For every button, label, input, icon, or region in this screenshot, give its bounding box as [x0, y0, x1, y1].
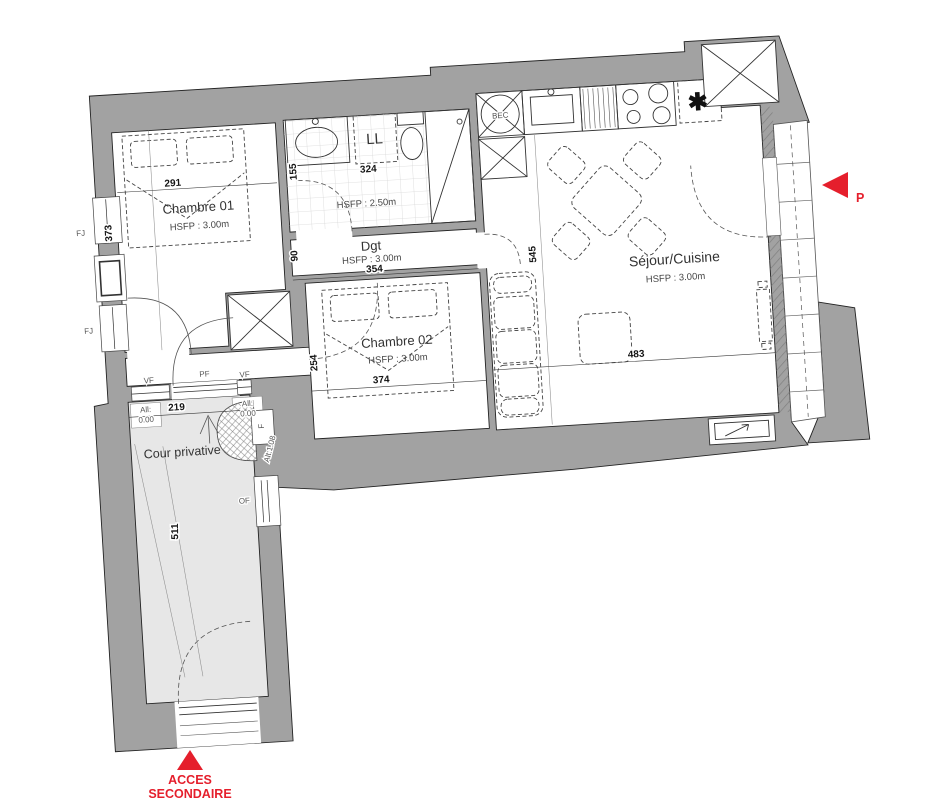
construction-line: [149, 131, 162, 351]
dim-291: 291: [164, 178, 182, 190]
washer-label: LL: [366, 130, 384, 148]
shower: [425, 109, 476, 223]
hsfp-sejour: HSFP : 3.00m: [646, 271, 706, 286]
closet-duct: [228, 291, 293, 350]
hsfp-chambre01: HSFP : 3.00m: [169, 219, 229, 234]
room-label-dgt: Dgt: [360, 238, 381, 254]
floor-plan-canvas: Chambre 01 HSFP : 3.00m 291 373 LL 324 1…: [0, 0, 940, 800]
room-label-chambre02: Chambre 02: [361, 332, 433, 351]
dim-354: 354: [366, 264, 384, 276]
secondary-arrow-icon: [177, 750, 203, 770]
vent-window-box: [708, 415, 775, 445]
bec-label: BEC: [492, 111, 509, 121]
secondary-label-line1: ACCES: [168, 773, 212, 787]
plan-rotated-group: Chambre 01 HSFP : 3.00m 291 373 LL 324 1…: [67, 32, 886, 752]
fj-upper-label: FJ: [76, 229, 85, 239]
dim-373: 373: [103, 224, 115, 242]
dim-254: 254: [309, 354, 321, 372]
dim-line-374: [312, 380, 487, 391]
floor-plan-page: Chambre 01 HSFP : 3.00m 291 373 LL 324 1…: [0, 0, 940, 800]
sill-right-label: All:: [242, 399, 254, 409]
wall-niche: [94, 254, 127, 302]
of-window: [254, 475, 281, 526]
principal-arrow-icon: [822, 172, 848, 198]
room-label-chambre01: Chambre 01: [162, 198, 234, 217]
sill-right-value: 0.00: [240, 409, 257, 419]
dim-511: 511: [170, 523, 181, 540]
fridge-asterisk: ✱: [687, 88, 709, 116]
chimney-block: [701, 40, 779, 106]
secondary-access-marker: ACCES SECONDAIRE: [148, 750, 231, 800]
dim-545: 545: [527, 245, 539, 263]
vf-right-label: VF: [239, 370, 250, 380]
dim-374: 374: [373, 374, 391, 386]
dim-155: 155: [288, 163, 300, 181]
construction-line-sejour: [535, 135, 553, 424]
dgt-sejour-door-gap: [475, 232, 487, 269]
duct-box: [479, 137, 527, 180]
principal-access-marker: P: [822, 172, 864, 205]
principal-label: P: [856, 191, 864, 205]
coffee-table: [578, 312, 633, 365]
kitchen-sink: [530, 95, 574, 126]
vf-window-left: [131, 385, 170, 401]
dim-90: 90: [289, 250, 301, 262]
sofa: [489, 271, 544, 418]
secondary-label-line2: SECONDAIRE: [148, 787, 231, 800]
f-label: F: [257, 423, 266, 429]
dim-324: 324: [360, 164, 378, 176]
dim-483: 483: [627, 349, 645, 361]
hsfp-chambre02: HSFP : 3.00m: [368, 352, 428, 367]
dining-set: [544, 138, 669, 263]
fj-window-lower: [99, 304, 129, 352]
dim-line-291: [117, 183, 277, 193]
room-label-sejour: Séjour/Cuisine: [628, 248, 720, 270]
entrance-door-swing: [691, 161, 771, 241]
radiator-right-wall: [756, 281, 773, 350]
pf-label: PF: [199, 369, 210, 379]
of-label: OF: [239, 496, 251, 506]
dgt-sejour-door-swing: [485, 232, 521, 268]
dim-219: 219: [168, 402, 186, 414]
vf-left-label: VF: [143, 376, 154, 386]
vf-window-right: [237, 380, 252, 395]
sill-left-label: All:: [140, 405, 152, 415]
chambre01-door-gap: [127, 348, 189, 360]
sill-left-value: 0.00: [138, 415, 155, 425]
fj-lower-label: FJ: [84, 326, 93, 336]
